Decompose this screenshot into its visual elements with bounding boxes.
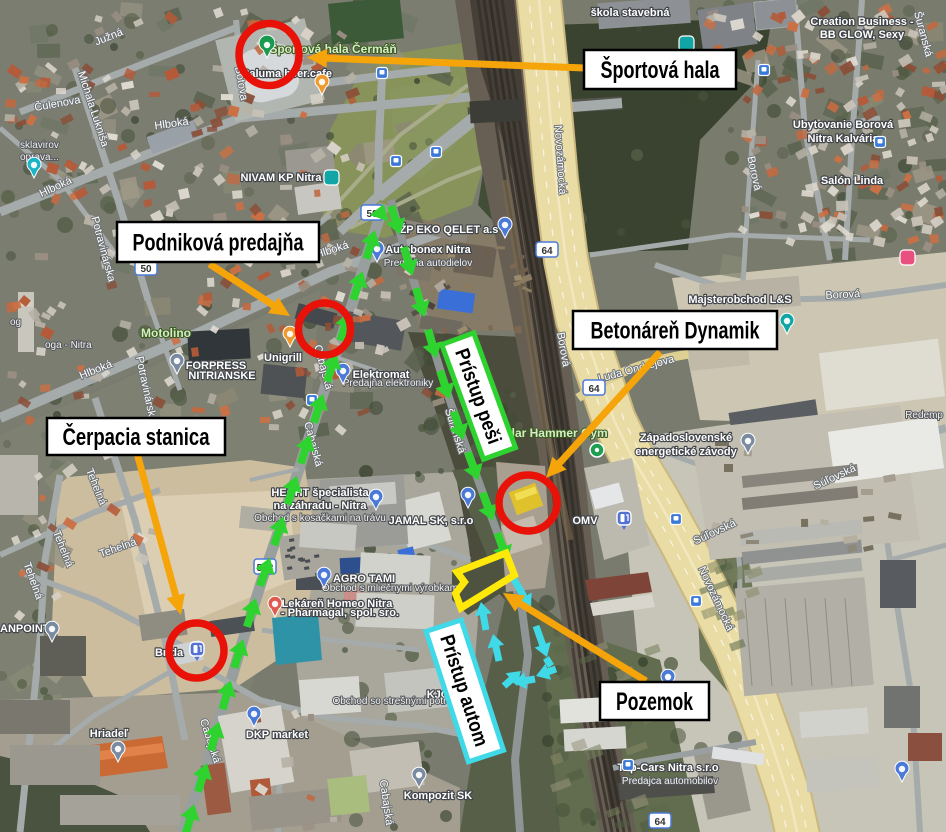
svg-text:Betonáreň Dynamik: Betonáreň Dynamik bbox=[591, 318, 760, 345]
svg-text:Športová hala Čermáň: Športová hala Čermáň bbox=[269, 41, 396, 56]
svg-text:NIVAM KP Nitra: NIVAM KP Nitra bbox=[241, 172, 323, 184]
svg-text:Predajňa autodielov: Predajňa autodielov bbox=[384, 258, 472, 269]
svg-text:DKP market: DKP market bbox=[246, 729, 308, 741]
svg-text:Hriadeľ: Hriadeľ bbox=[90, 728, 129, 740]
svg-text:Predajca automobilov: Predajca automobilov bbox=[622, 776, 718, 787]
svg-text:Motolino: Motolino bbox=[141, 326, 191, 340]
svg-text:Pozemok: Pozemok bbox=[616, 688, 693, 716]
svg-text:JAMAL SK, s.r.o: JAMAL SK, s.r.o bbox=[389, 515, 474, 527]
svg-text:Predajňa elektroniky: Predajňa elektroniky bbox=[343, 378, 434, 389]
svg-text:Obchod s mliečnymi výrobkam: Obchod s mliečnymi výrobkam bbox=[322, 583, 458, 594]
svg-text:Majsterobchod L&S: Majsterobchod L&S bbox=[688, 294, 791, 306]
svg-text:oga - Nitra: oga - Nitra bbox=[45, 340, 92, 351]
svg-text:Unigrill: Unigrill bbox=[264, 352, 302, 364]
svg-text:- Pharmagal, spol. sro.: - Pharmagal, spol. sro. bbox=[281, 607, 399, 619]
svg-text:BB GLOW, Sexy: BB GLOW, Sexy bbox=[820, 29, 905, 41]
svg-text:Kompozit SK: Kompozit SK bbox=[404, 790, 472, 802]
svg-text:Športová hala: Športová hala bbox=[601, 56, 720, 84]
svg-text:Podniková predajňa: Podniková predajňa bbox=[133, 230, 304, 257]
svg-text:ŽP EKO QELET a.s: ŽP EKO QELET a.s bbox=[400, 223, 499, 236]
svg-text:Salón Linda: Salón Linda bbox=[821, 175, 884, 187]
svg-text:64: 64 bbox=[654, 817, 666, 828]
svg-text:OMV: OMV bbox=[572, 515, 598, 527]
svg-text:Borová: Borová bbox=[825, 288, 861, 302]
svg-text:Čerpacia stanica: Čerpacia stanica bbox=[63, 423, 210, 451]
svg-text:Creation Business -: Creation Business - bbox=[810, 16, 914, 28]
svg-text:NITRIANSKE: NITRIANSKE bbox=[188, 370, 255, 382]
svg-text:Ubytovanie Borová: Ubytovanie Borová bbox=[793, 119, 894, 131]
svg-text:64: 64 bbox=[588, 384, 600, 395]
svg-text:Redemp: Redemp bbox=[905, 410, 943, 421]
svg-text:energetické závody: energetické závody bbox=[635, 446, 737, 458]
svg-text:škola stavebná: škola stavebná bbox=[591, 7, 671, 19]
svg-text:Nitra Kalvária: Nitra Kalvária bbox=[808, 133, 880, 145]
svg-text:ANPOINT: ANPOINT bbox=[0, 623, 50, 635]
svg-text:og: og bbox=[10, 317, 21, 328]
svg-text:50: 50 bbox=[140, 264, 152, 275]
svg-text:64: 64 bbox=[541, 246, 553, 257]
svg-text:sklavirov: sklavirov bbox=[20, 140, 59, 151]
svg-text:Autobonex Nitra: Autobonex Nitra bbox=[385, 244, 471, 256]
svg-text:Obchod so strešnými potreb: Obchod so strešnými potreb bbox=[332, 696, 457, 707]
svg-text:Západoslovenské: Západoslovenské bbox=[640, 432, 732, 444]
svg-text:Obchod s kosačkami na trávu: Obchod s kosačkami na trávu bbox=[254, 513, 386, 524]
